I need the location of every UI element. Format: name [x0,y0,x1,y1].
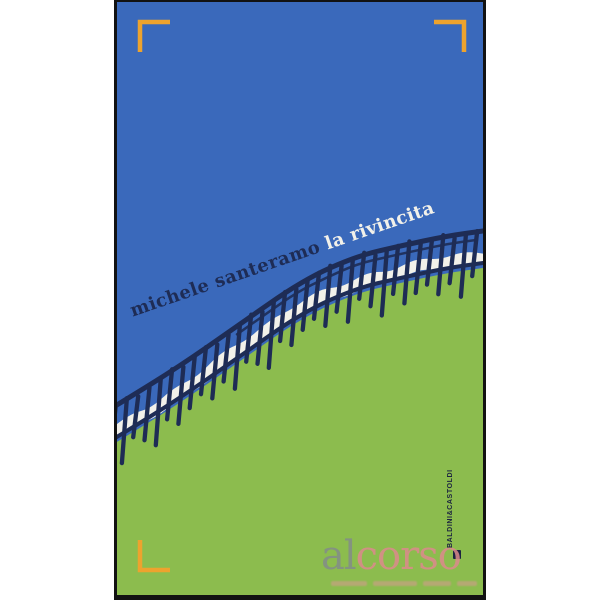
watermark-tagline [331,581,477,586]
product-image-canvas: michele santeramo la rivincita BALDINI&C… [0,0,600,600]
store-watermark: alcorso [321,534,461,578]
watermark-corso: corso [356,533,461,579]
book-cover: michele santeramo la rivincita BALDINI&C… [114,0,486,600]
watermark-al: al [321,533,356,579]
